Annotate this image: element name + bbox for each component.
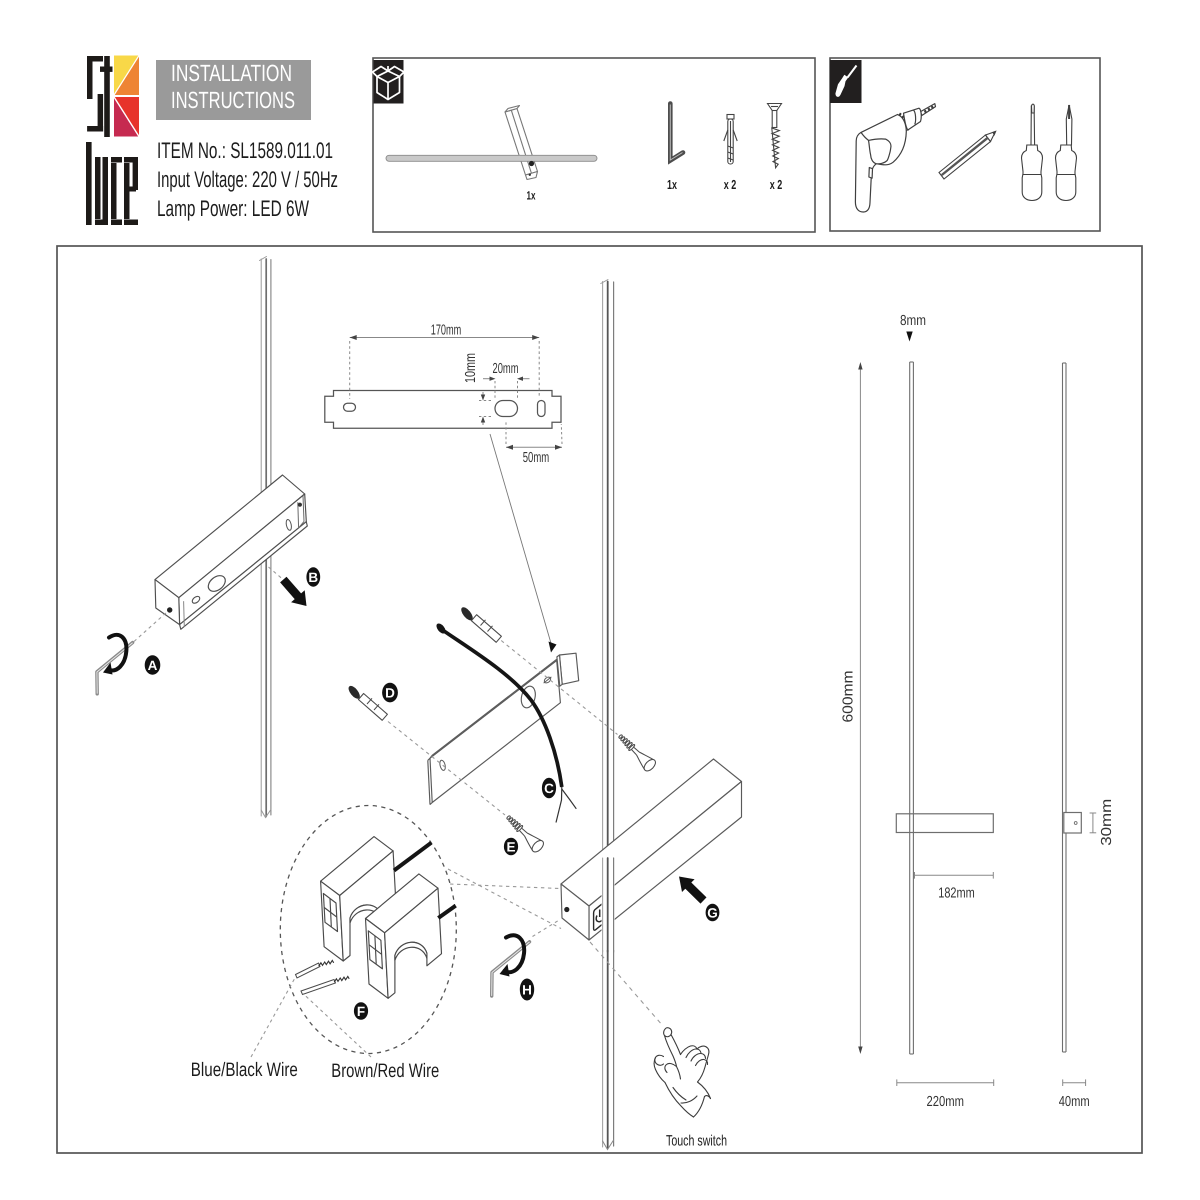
- svg-text:Brown/Red Wire: Brown/Red Wire: [331, 1060, 439, 1082]
- svg-text:1x: 1x: [667, 177, 678, 192]
- svg-text:E: E: [506, 839, 515, 854]
- svg-text:Touch switch: Touch switch: [666, 1133, 727, 1150]
- svg-text:A: A: [148, 658, 158, 673]
- svg-text:10mm: 10mm: [463, 353, 479, 383]
- svg-text:Input Voltage: 220 V / 50Hz: Input Voltage: 220 V / 50Hz: [157, 167, 338, 192]
- svg-text:Lamp Power: LED 6W: Lamp Power: LED 6W: [157, 196, 310, 221]
- svg-text:8mm: 8mm: [900, 313, 926, 329]
- svg-text:x 2: x 2: [724, 177, 737, 192]
- svg-text:170mm: 170mm: [431, 323, 462, 339]
- svg-text:30mm: 30mm: [1099, 799, 1115, 846]
- svg-text:D: D: [385, 685, 395, 700]
- svg-text:220mm: 220mm: [927, 1094, 965, 1110]
- svg-text:G: G: [707, 905, 718, 920]
- svg-text:40mm: 40mm: [1059, 1094, 1090, 1110]
- svg-text:50mm: 50mm: [523, 450, 550, 466]
- svg-text:600mm: 600mm: [841, 671, 857, 723]
- svg-text:C: C: [544, 781, 554, 796]
- svg-text:B: B: [308, 570, 318, 585]
- svg-text:H: H: [522, 982, 532, 997]
- svg-text:INSTALLATION: INSTALLATION: [171, 60, 292, 86]
- svg-text:Blue/Black Wire: Blue/Black Wire: [191, 1059, 298, 1081]
- svg-text:182mm: 182mm: [938, 886, 975, 902]
- svg-text:INSTRUCTIONS: INSTRUCTIONS: [171, 87, 295, 113]
- svg-text:1x: 1x: [527, 189, 536, 203]
- svg-text:ITEM No.: SL1589.011.01: ITEM No.: SL1589.011.01: [157, 138, 333, 163]
- svg-text:F: F: [357, 1004, 365, 1019]
- svg-text:x 2: x 2: [770, 177, 783, 192]
- svg-text:20mm: 20mm: [493, 361, 519, 377]
